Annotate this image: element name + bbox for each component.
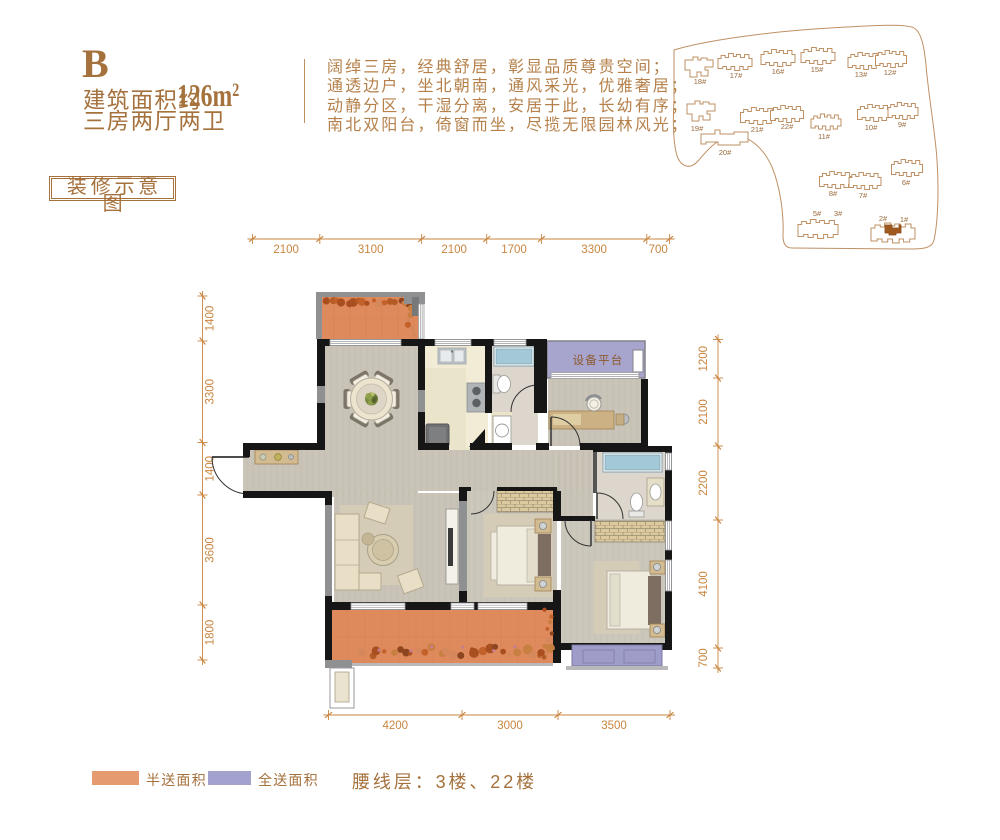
svg-text:3300: 3300 <box>581 244 607 256</box>
svg-text:7#: 7# <box>859 191 868 200</box>
svg-text:2100: 2100 <box>441 244 467 256</box>
svg-text:设备平台: 设备平台 <box>573 353 624 367</box>
svg-text:700: 700 <box>698 648 710 667</box>
svg-text:20#: 20# <box>719 148 732 157</box>
svg-text:9#: 9# <box>898 120 907 129</box>
svg-text:6#: 6# <box>902 178 911 187</box>
svg-text:22#: 22# <box>781 122 794 131</box>
svg-text:18#: 18# <box>694 77 707 86</box>
svg-text:3500: 3500 <box>601 720 627 732</box>
svg-text:3100: 3100 <box>358 244 384 256</box>
svg-text:1400: 1400 <box>205 456 217 482</box>
svg-text:3000: 3000 <box>497 720 523 732</box>
svg-text:1200: 1200 <box>698 346 710 372</box>
svg-text:11#: 11# <box>818 132 831 141</box>
svg-text:2100: 2100 <box>698 399 710 425</box>
svg-text:1800: 1800 <box>205 620 217 646</box>
svg-text:2#: 2# <box>879 214 888 223</box>
svg-text:10#: 10# <box>865 123 878 132</box>
svg-text:1400: 1400 <box>205 306 217 332</box>
svg-text:1#: 1# <box>900 215 909 224</box>
svg-text:1700: 1700 <box>501 244 527 256</box>
svg-text:13#: 13# <box>855 70 868 79</box>
svg-text:17#: 17# <box>730 71 743 80</box>
svg-text:2100: 2100 <box>273 244 299 256</box>
svg-text:8#: 8# <box>829 189 838 198</box>
svg-text:3600: 3600 <box>205 537 217 563</box>
svg-text:5#: 5# <box>813 209 822 218</box>
svg-text:4100: 4100 <box>698 571 710 597</box>
svg-text:700: 700 <box>649 244 668 256</box>
svg-text:19#: 19# <box>691 124 704 133</box>
svg-text:16#: 16# <box>772 67 785 76</box>
svg-text:21#: 21# <box>751 125 764 134</box>
svg-text:2200: 2200 <box>698 470 710 496</box>
svg-text:3300: 3300 <box>205 379 217 405</box>
svg-text:15#: 15# <box>811 65 824 74</box>
svg-text:12#: 12# <box>884 68 897 77</box>
svg-text:4200: 4200 <box>382 720 408 732</box>
svg-text:3#: 3# <box>834 209 843 218</box>
